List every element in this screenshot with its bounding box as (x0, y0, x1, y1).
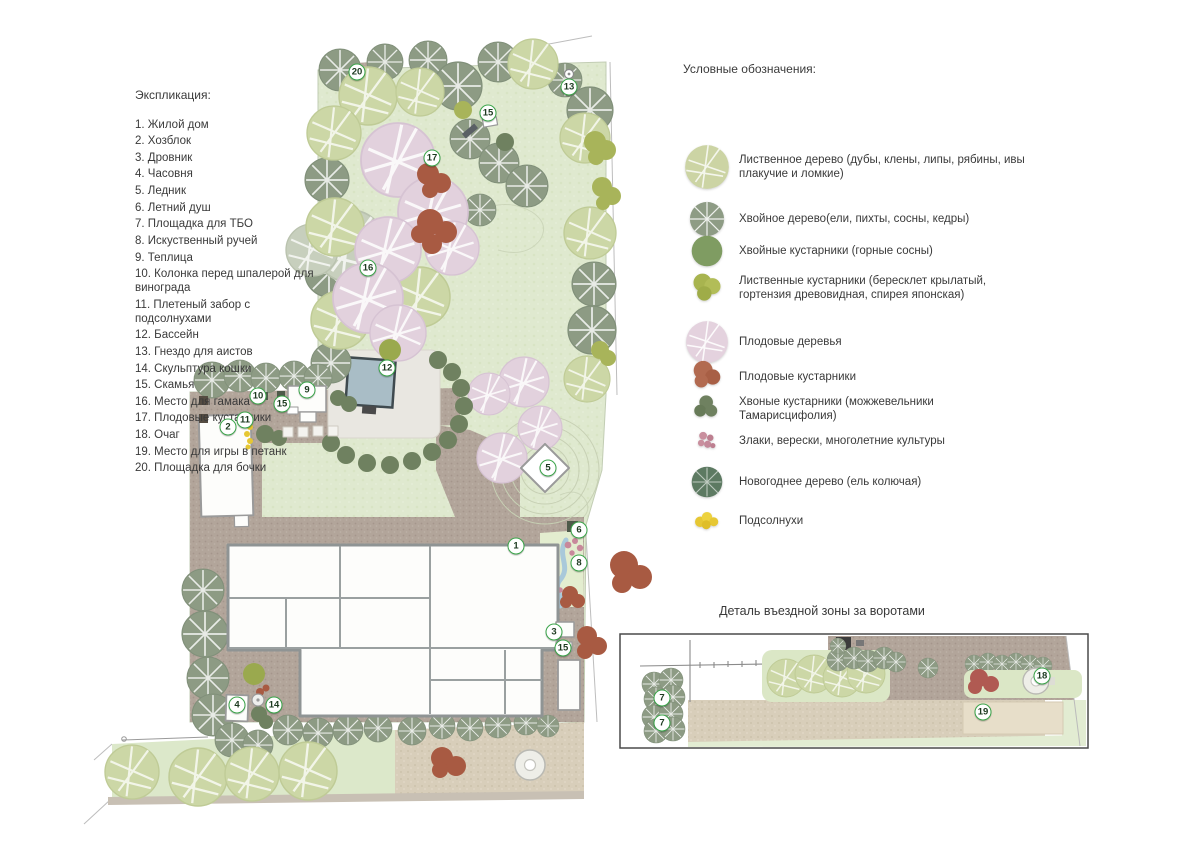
plan-marker-19: 19 (975, 704, 992, 721)
plan-marker-9: 9 (299, 382, 316, 399)
plan-marker-12: 12 (379, 360, 396, 377)
plan-marker-18: 18 (1034, 668, 1051, 685)
plan-marker-14: 14 (266, 697, 283, 714)
plan-marker-7: 7 (654, 690, 671, 707)
plan-marker-4: 4 (229, 697, 246, 714)
plan-marker-3: 3 (546, 624, 563, 641)
plan-marker-8: 8 (571, 555, 588, 572)
plan-marker-10: 10 (250, 388, 267, 405)
plan-marker-16: 16 (360, 260, 377, 277)
markers-layer: 201315171612910152115618315414771819 (0, 0, 1200, 850)
plan-marker-2: 2 (220, 419, 237, 436)
plan-marker-13: 13 (561, 79, 578, 96)
plan-marker-15: 15 (274, 396, 291, 413)
landscape-plan-page: Экспликация: 1. Жилой дом2. Хозблок3. Др… (0, 0, 1200, 850)
plan-marker-15: 15 (480, 105, 497, 122)
plan-marker-11: 11 (237, 412, 254, 429)
plan-marker-1: 1 (508, 538, 525, 555)
plan-marker-7: 7 (654, 715, 671, 732)
plan-marker-6: 6 (571, 522, 588, 539)
plan-marker-15: 15 (555, 640, 572, 657)
plan-marker-5: 5 (540, 460, 557, 477)
plan-marker-17: 17 (424, 150, 441, 167)
plan-marker-20: 20 (349, 64, 366, 81)
